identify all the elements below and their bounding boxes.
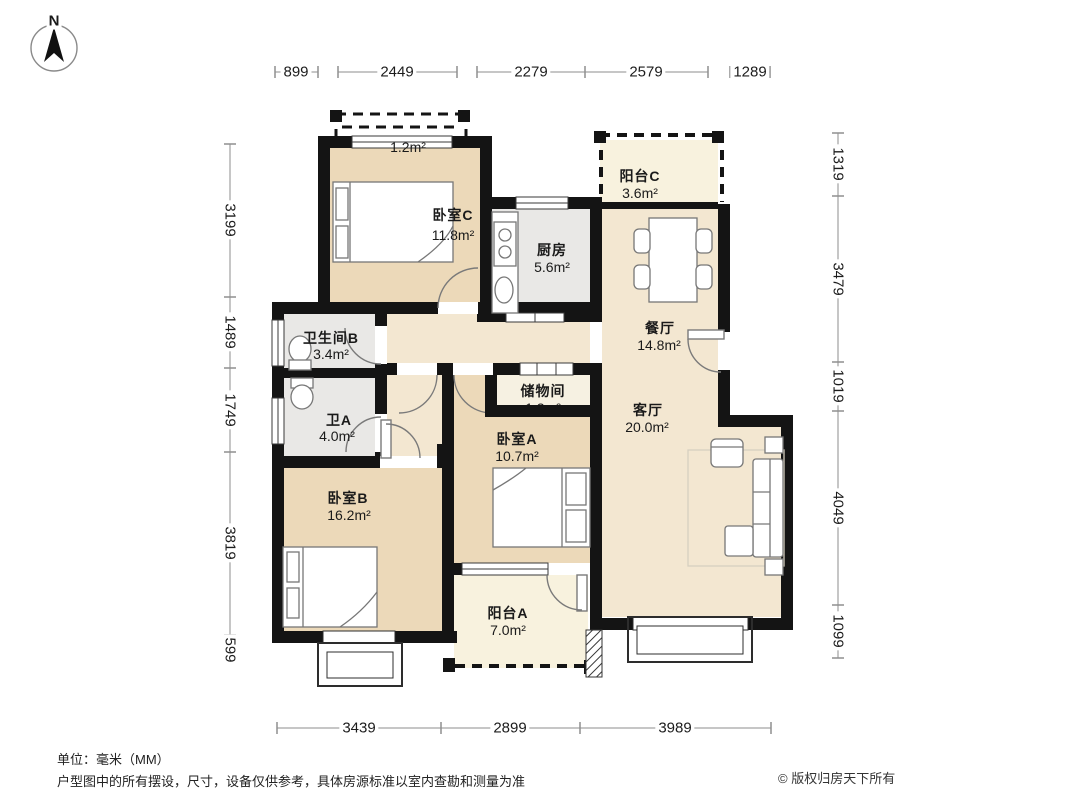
- living-bay-window: [628, 617, 752, 662]
- balcony-a-railing-hatch: [586, 630, 602, 677]
- toilet-icon-bath-a: [291, 378, 313, 409]
- armchair-icon: [711, 439, 743, 467]
- balcony-a-floor: [454, 575, 588, 668]
- disclaimer-note: 户型图中的所有摆设，尺寸，设备仅供参考，具体房源标准以室内查勘和测量为准: [57, 771, 525, 790]
- bed-icon-bedroom-a: [493, 468, 590, 547]
- bed-icon-bedroom-b: [283, 547, 377, 627]
- vestibule-floor: [387, 375, 442, 456]
- bed-icon-bedroom-c: [333, 182, 453, 262]
- storage-wall-overlay: [485, 405, 602, 417]
- kitchen-counter-icon: [492, 212, 518, 313]
- balcony-c-floor: [600, 140, 718, 202]
- sofa-chaise: [725, 526, 753, 556]
- living-floor-upper: [602, 363, 718, 617]
- storage-sliding-door: [520, 363, 573, 375]
- unit-note: 单位：毫米（MM）: [57, 749, 170, 768]
- floorplan-drawing: [0, 0, 1066, 800]
- storage-floor: [497, 375, 590, 405]
- bedroom-c-bay-window: [336, 112, 466, 136]
- copyright-note: © 版权归房天下所有: [778, 768, 895, 787]
- bedroom-c-window: [352, 136, 452, 148]
- floorplan-page: N 1.2m² 卧室C 11.8m² 厨房 5.6m² 阳台C 3.6m² 餐厅…: [0, 0, 1066, 800]
- toilet-icon-bath-b: [289, 336, 311, 370]
- side-table-icon: [765, 559, 783, 575]
- bath-a-window: [272, 398, 284, 444]
- bedroom-b-bay-window: [318, 631, 402, 686]
- side-table-icon: [765, 437, 783, 453]
- kitchen-window: [516, 197, 568, 209]
- kitchen-sliding-door: [506, 313, 564, 322]
- bath-b-window: [272, 320, 284, 366]
- bedroom-a-window: [462, 563, 548, 575]
- north-compass-icon: [31, 25, 77, 71]
